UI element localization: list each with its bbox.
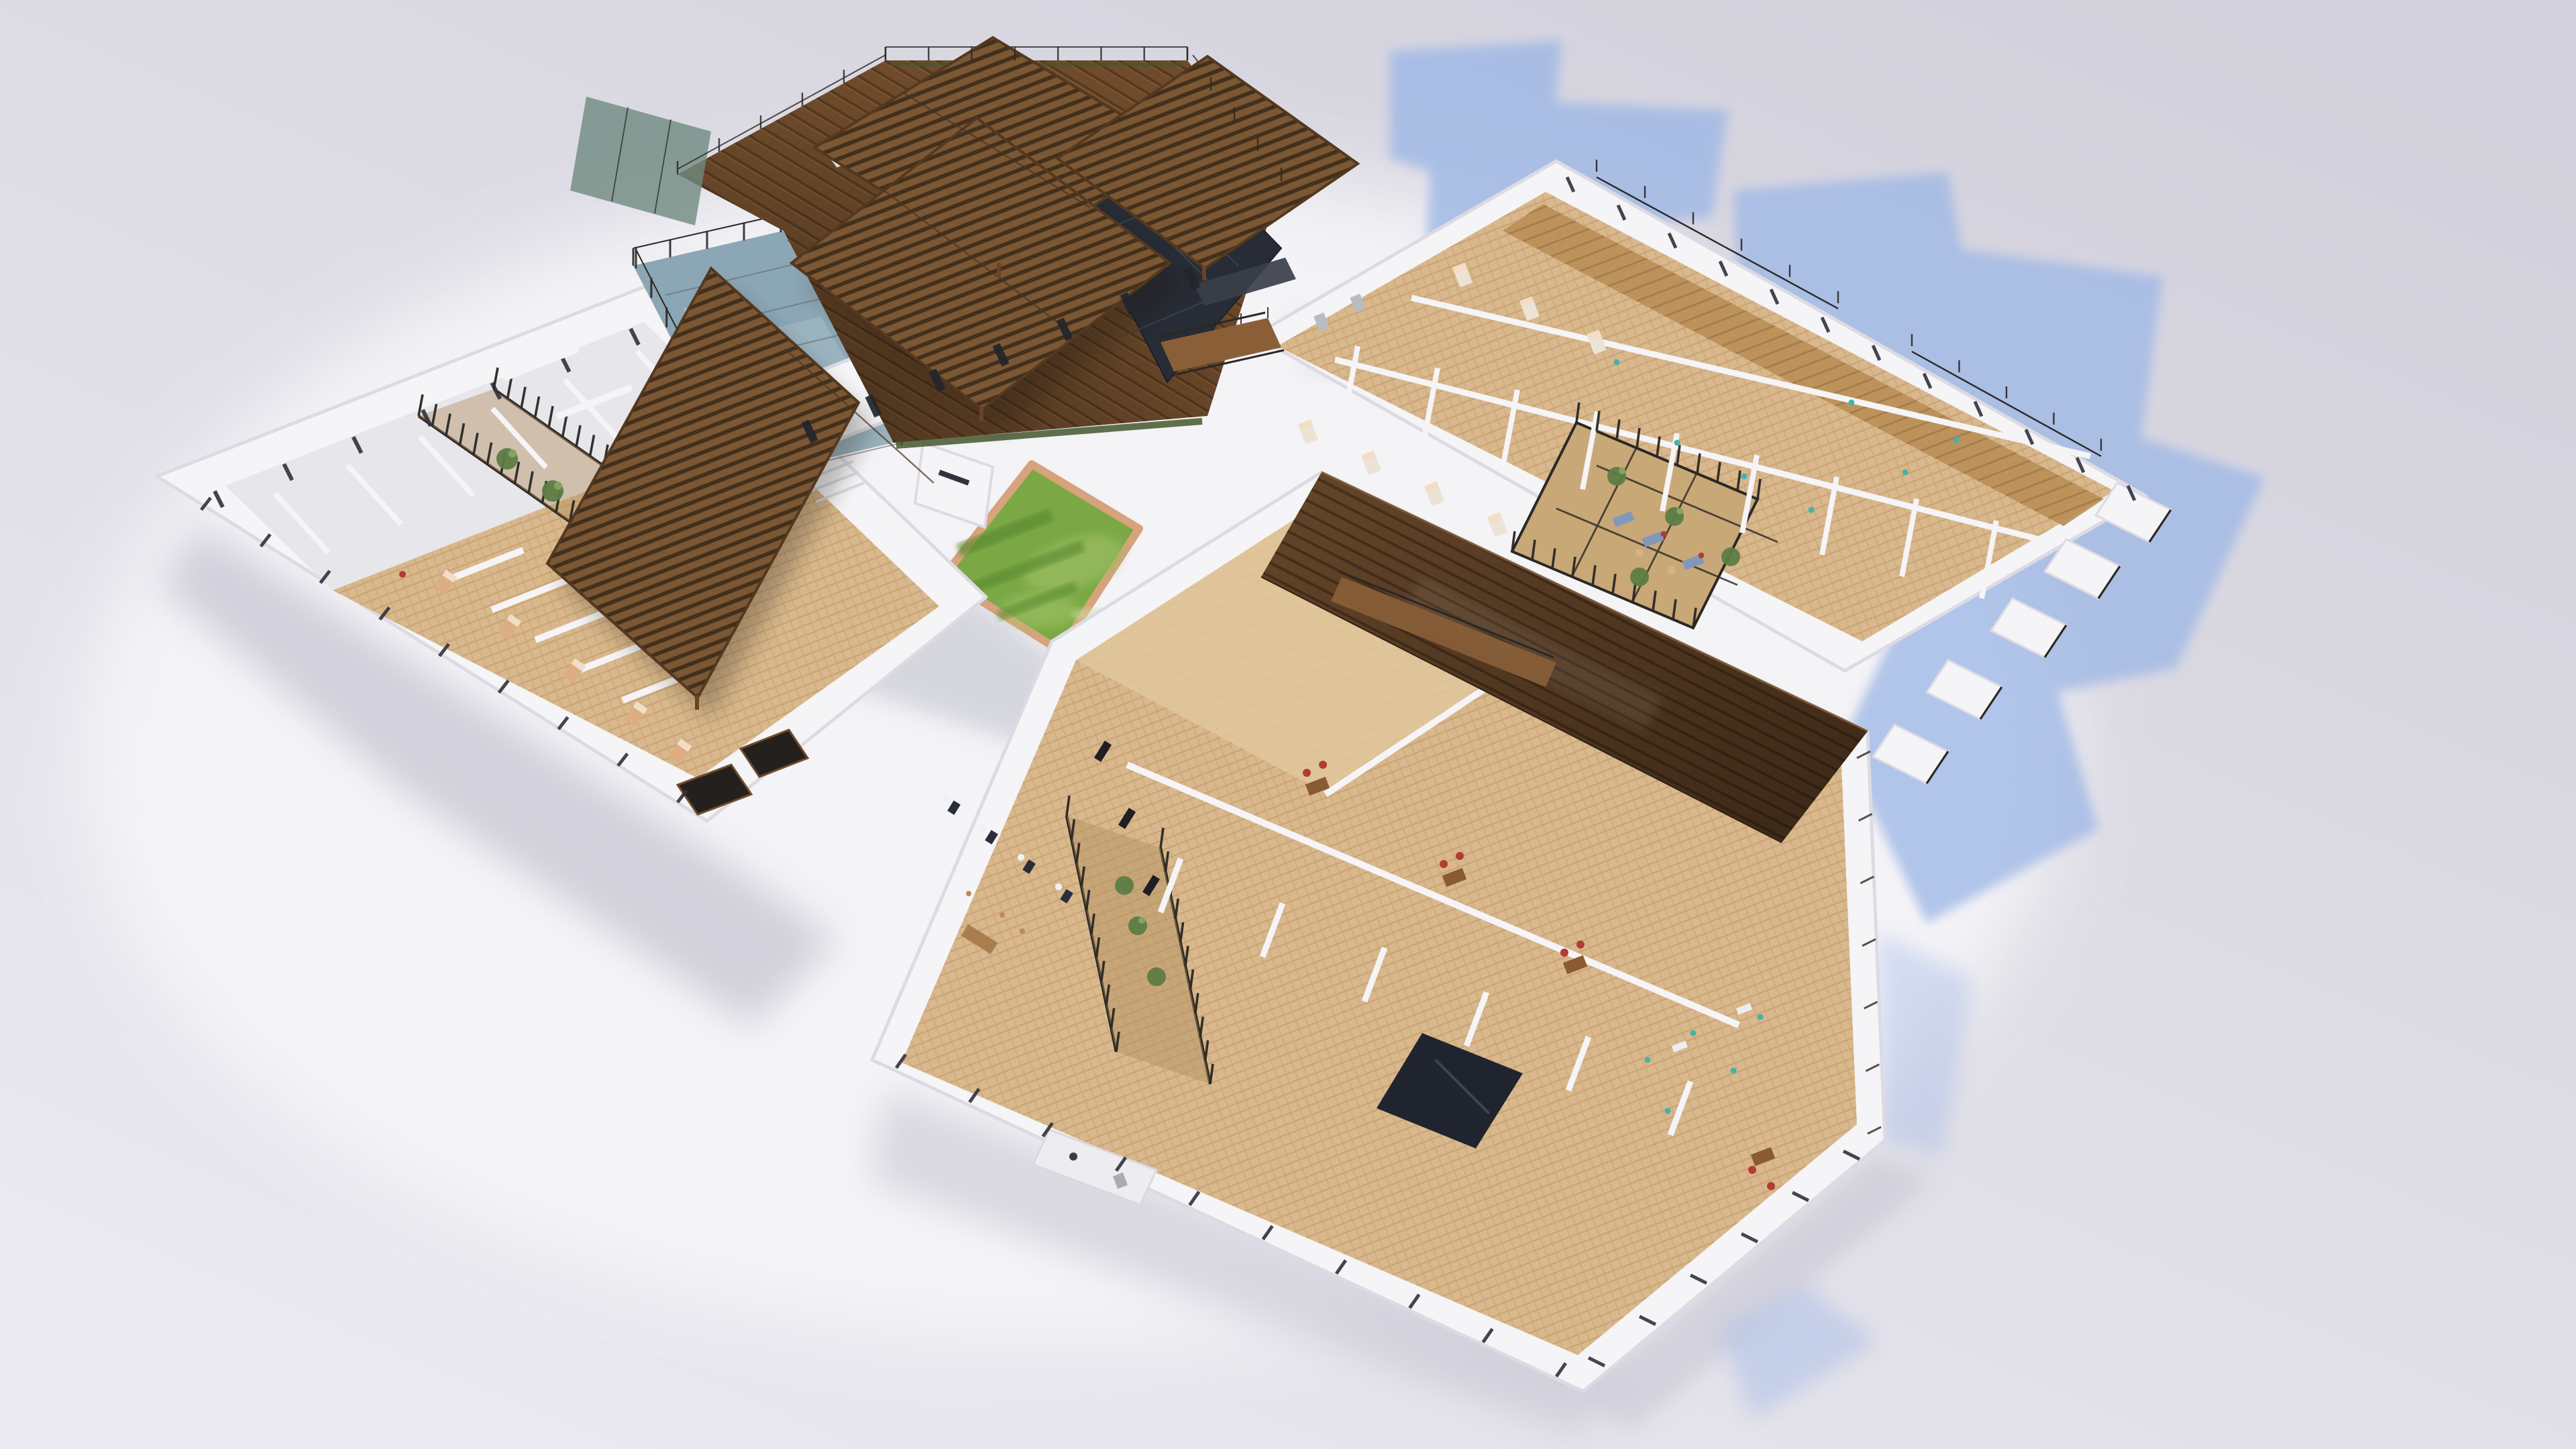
stool [966, 891, 971, 896]
sofa-cushion-red [1699, 553, 1705, 559]
salon-chair-red [1319, 761, 1327, 769]
salon-chair-red [1440, 860, 1448, 868]
atrium-plant-highlight [1138, 917, 1145, 924]
bathroom-fixture [1731, 1068, 1737, 1074]
coffee-table [1668, 566, 1676, 574]
bathroom-fixture [1645, 1057, 1651, 1063]
lounge-plant-highlight [1619, 468, 1625, 474]
salon-chair-red [1767, 1182, 1775, 1190]
bathroom-fixture [1849, 400, 1855, 406]
pergola-post [1202, 266, 1206, 280]
bathroom-fixture [1690, 1030, 1697, 1036]
atrium-plant-highlight [508, 449, 517, 458]
salon-chair-red [1456, 852, 1464, 860]
bathroom-fixture [1758, 1014, 1764, 1020]
atrium-plant-highlight [554, 482, 562, 490]
lounge-plant [1630, 568, 1649, 586]
atrium-plant [1147, 967, 1166, 986]
stool [1020, 928, 1025, 934]
wash-basin [1055, 883, 1062, 890]
coffee-table [1635, 549, 1644, 557]
scene-3d-floorplan-render [0, 0, 2576, 1449]
salon-chair-red [1560, 949, 1568, 957]
wash-basin [943, 795, 949, 802]
bathroom-fixture [1953, 437, 1960, 443]
lounge-plant-highlight [1676, 508, 1683, 515]
bathroom-fixture [1902, 470, 1909, 476]
bathroom-fixture [1665, 1108, 1671, 1114]
salon-chair-red [1748, 1166, 1756, 1174]
sofa-cushion-red [1661, 531, 1667, 537]
stool [1000, 912, 1005, 918]
stove [1069, 1152, 1077, 1161]
bathroom-fixture [1741, 474, 1748, 480]
atrium-plant [1115, 876, 1134, 895]
bathroom-fixture [1674, 440, 1680, 446]
bathroom-fixture [1614, 360, 1620, 366]
pergola-post [997, 263, 1001, 278]
salon-chair-red [1576, 941, 1585, 949]
bathroom-fixture [1809, 507, 1815, 513]
wash-basin [980, 824, 987, 831]
wash-basin [1018, 854, 1024, 861]
salon-chair-red [1303, 769, 1311, 777]
pergola-post [695, 695, 699, 710]
pergola-post [979, 407, 983, 421]
lounge-plant [1721, 547, 1740, 566]
chair-red [399, 571, 406, 578]
